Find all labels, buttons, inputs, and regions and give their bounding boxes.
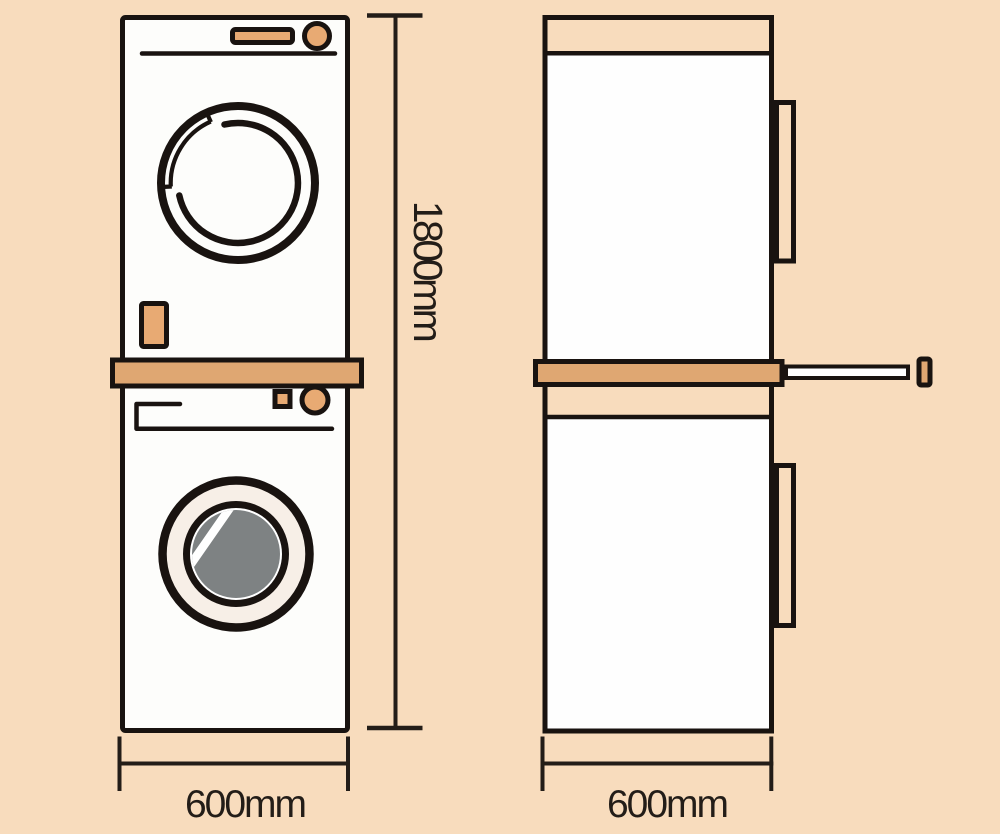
svg-text:600mm: 600mm bbox=[607, 783, 727, 826]
svg-text:1800mm: 1800mm bbox=[405, 201, 451, 341]
svg-text:600mm: 600mm bbox=[185, 783, 305, 826]
